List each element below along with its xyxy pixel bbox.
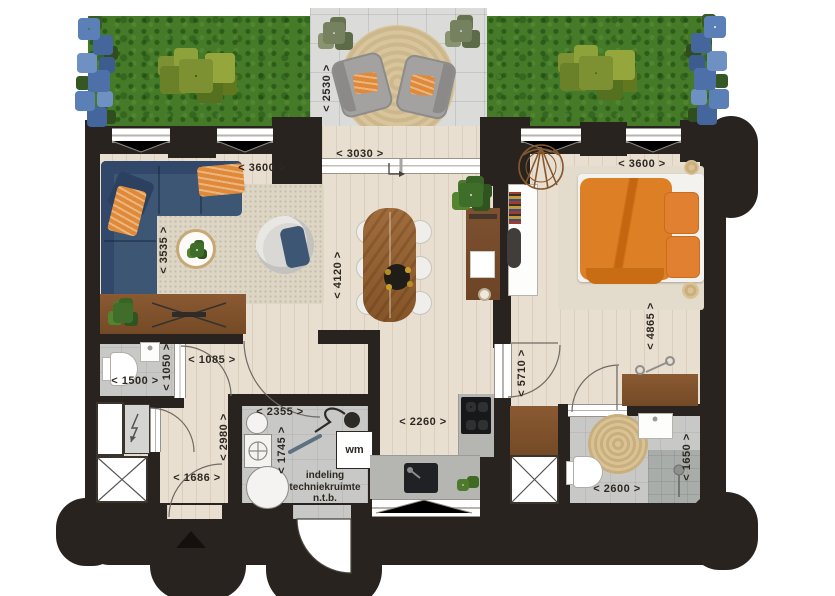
door-arc-bathroom	[572, 365, 619, 412]
window-swing-icon-1	[112, 141, 170, 152]
floor-plan: wm	[0, 0, 835, 596]
dim-hall-width: < 1085 >	[188, 354, 235, 366]
door-arc-meter	[150, 408, 194, 452]
dim-entry-width: < 1686 >	[173, 472, 220, 484]
shaft-x-icon-right	[512, 457, 557, 502]
dim-bedroom-width: < 3600 >	[618, 158, 665, 170]
dim-bedroom-hall: < 5710 >	[516, 349, 528, 396]
dim-living-depth: < 3535 >	[158, 226, 170, 273]
plan-annotations	[0, 0, 835, 596]
electrical-meter-icon	[130, 414, 138, 442]
mop-icon	[290, 436, 320, 452]
faucet-icon-wc	[148, 346, 153, 351]
dim-terrace-depth: < 2530 >	[321, 64, 333, 111]
dim-tech-width: < 2355 >	[256, 406, 303, 418]
dim-bath-width: < 2600 >	[593, 483, 640, 495]
vacuum-cleaner-icon	[315, 409, 360, 432]
door-arc-tech-exterior	[297, 519, 351, 573]
dim-hall-length: < 2980 >	[218, 413, 230, 460]
window-swing-icon-kitchen	[376, 500, 472, 513]
dim-kitchen-width: < 2260 >	[399, 416, 446, 428]
dim-bath-depth: < 1650 >	[681, 433, 693, 480]
boiler-connection-icon	[249, 442, 267, 460]
dim-dining-length: < 4120 >	[332, 251, 344, 298]
shaft-x-icon-left	[98, 458, 146, 501]
tech-room-note: indeling techniekruimte n.t.b.	[277, 470, 373, 505]
dim-tech-depth: < 1745 >	[276, 426, 288, 473]
window-swing-icon-2	[217, 141, 273, 152]
dresser-mirror-icon	[636, 357, 674, 374]
dim-terrace-width: < 3030 >	[336, 148, 383, 160]
faucet-icon-bath	[653, 417, 658, 422]
dim-bedroom-length: < 4865 >	[645, 302, 657, 349]
window-swing-icon-4	[626, 141, 681, 152]
faucet-icon-kitchen	[407, 467, 420, 478]
dim-wc-width: < 1500 >	[111, 375, 158, 387]
dim-living-width: < 3600 >	[238, 162, 285, 174]
tv-icon	[152, 303, 226, 327]
hanging-chair	[519, 145, 563, 189]
sliding-door-arrow-icon	[389, 163, 405, 177]
dim-wc-depth: < 1050 >	[161, 343, 173, 390]
